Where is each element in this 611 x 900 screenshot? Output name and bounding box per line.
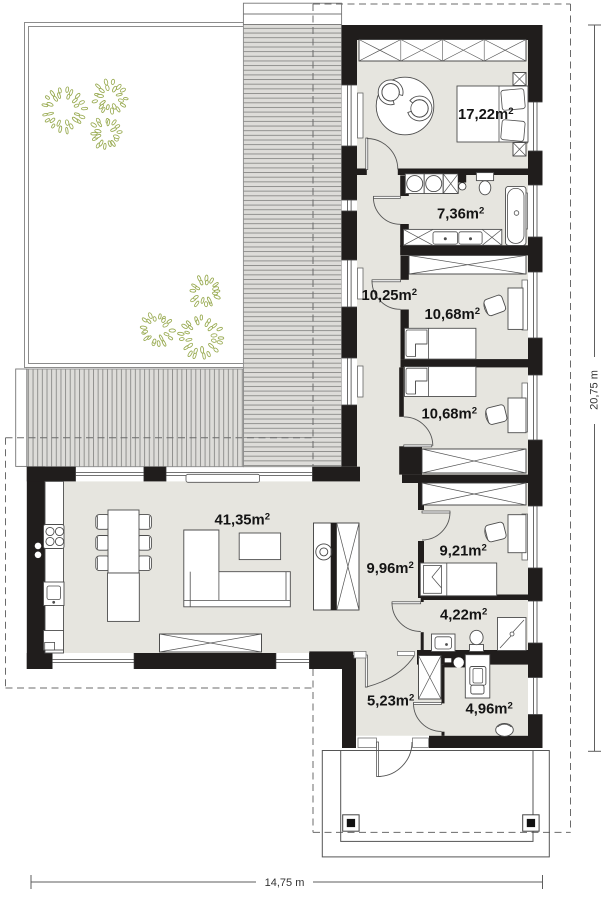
svg-text:9,21m2: 9,21m2 (440, 543, 487, 560)
svg-text:41,35m2: 41,35m2 (215, 512, 271, 529)
svg-text:10,68m2: 10,68m2 (422, 406, 478, 423)
svg-text:4,22m2: 4,22m2 (440, 607, 487, 624)
svg-text:10,25m2: 10,25m2 (362, 287, 418, 304)
svg-text:5,23m2: 5,23m2 (367, 693, 414, 710)
svg-text:14,75 m: 14,75 m (265, 877, 305, 889)
svg-text:4,96m2: 4,96m2 (466, 701, 513, 718)
svg-text:20,75 m: 20,75 m (588, 370, 600, 410)
svg-text:17,22m2: 17,22m2 (458, 106, 514, 123)
svg-text:10,68m2: 10,68m2 (425, 306, 481, 323)
svg-text:7,36m2: 7,36m2 (437, 206, 484, 223)
svg-text:9,96m2: 9,96m2 (367, 560, 414, 577)
